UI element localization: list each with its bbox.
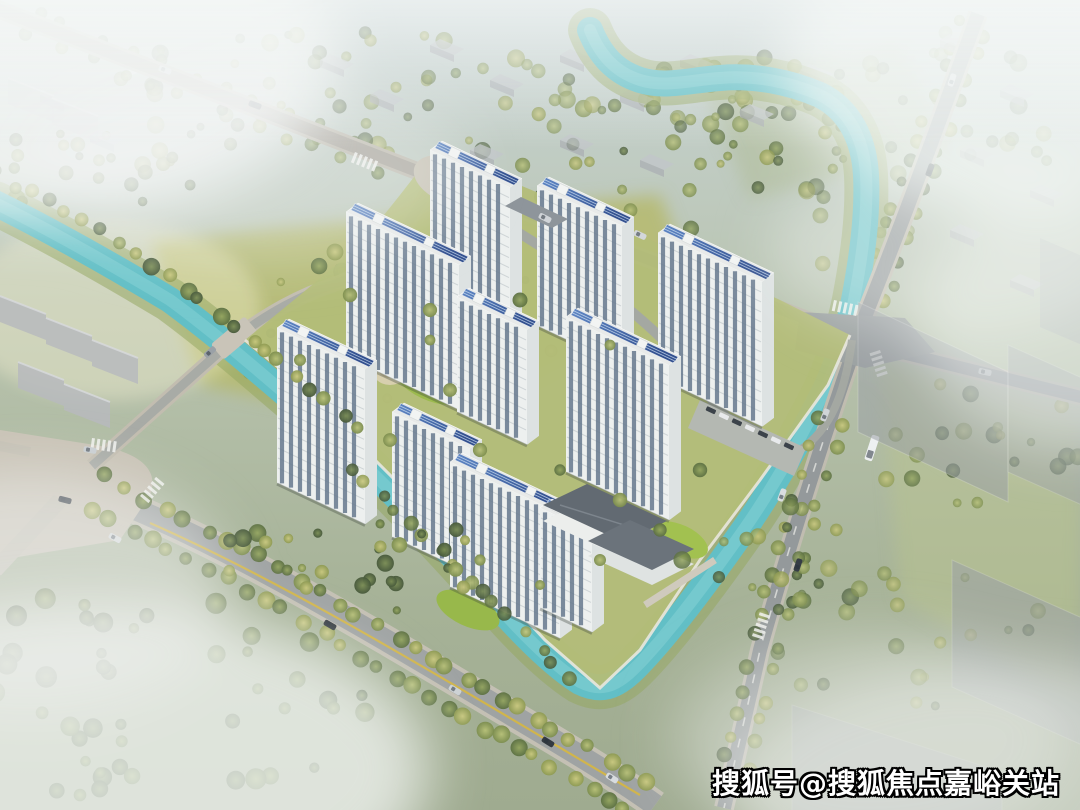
scene-svg	[0, 0, 1080, 810]
tree	[693, 463, 707, 477]
tree	[227, 320, 240, 333]
tower-side-facade	[365, 360, 377, 524]
tree	[404, 516, 419, 531]
tree	[617, 185, 627, 195]
tree	[618, 764, 635, 781]
tree	[294, 354, 306, 366]
tree	[820, 560, 837, 577]
tree	[351, 422, 363, 434]
tree	[792, 592, 807, 607]
tree	[477, 722, 494, 739]
tree	[435, 658, 452, 675]
tree	[423, 303, 437, 317]
tree	[379, 491, 390, 502]
tree	[386, 576, 397, 587]
tree	[782, 498, 799, 515]
tree	[284, 534, 294, 544]
tree	[313, 529, 322, 538]
tree	[814, 579, 824, 589]
tree	[569, 157, 582, 170]
watermark-text: 搜狐号@搜狐焦点嘉峪关站	[712, 762, 1060, 802]
tree	[594, 554, 606, 566]
tree	[584, 157, 595, 168]
tree	[277, 278, 285, 286]
tree	[773, 156, 783, 166]
tree	[474, 554, 485, 565]
tower-side-facade	[762, 273, 774, 427]
tree	[190, 292, 202, 304]
tree	[682, 183, 696, 197]
tree	[296, 615, 312, 631]
tree	[694, 158, 707, 171]
tree	[223, 534, 237, 548]
tree	[291, 370, 303, 382]
tree	[808, 500, 820, 512]
tree	[239, 584, 255, 600]
tree	[972, 497, 984, 509]
tower-side-facade	[527, 321, 539, 445]
tree	[163, 268, 177, 282]
tree	[343, 288, 357, 302]
tree	[752, 181, 765, 194]
aerial-rendering-canvas: 搜狐号@搜狐焦点嘉峪关站	[0, 0, 1080, 810]
tree	[143, 258, 161, 276]
tree	[282, 565, 293, 576]
tree	[544, 656, 557, 669]
tree	[474, 679, 490, 695]
tree	[890, 598, 905, 613]
tree	[371, 618, 384, 631]
tree	[541, 760, 557, 776]
tree	[877, 566, 891, 580]
tree	[542, 722, 558, 738]
tree	[808, 517, 821, 530]
tree	[803, 440, 815, 452]
tree	[493, 725, 511, 743]
tree	[374, 541, 386, 553]
tree	[298, 564, 306, 572]
tree	[828, 164, 838, 174]
tree	[757, 585, 771, 599]
tree	[520, 626, 531, 637]
tree	[370, 660, 383, 673]
tree	[637, 773, 655, 791]
tree	[561, 733, 575, 747]
tree	[333, 599, 347, 613]
tree	[838, 604, 855, 621]
tree	[497, 606, 511, 620]
tree	[300, 581, 314, 595]
tree	[377, 555, 394, 572]
tree	[443, 383, 457, 397]
tree	[835, 418, 850, 433]
car-windshield	[86, 447, 91, 452]
tower-side-facade	[669, 356, 681, 520]
tree	[259, 536, 272, 549]
tree	[485, 595, 498, 608]
tree	[403, 676, 421, 694]
tree	[535, 580, 545, 590]
tree	[356, 475, 369, 488]
tree	[759, 150, 775, 166]
tree	[302, 383, 317, 398]
tree	[740, 532, 754, 546]
tree	[315, 565, 329, 579]
tree	[383, 433, 397, 447]
tree	[568, 771, 583, 786]
tree	[904, 470, 920, 486]
tree	[425, 335, 436, 346]
tree	[878, 471, 894, 487]
tree	[953, 499, 962, 508]
tree	[311, 258, 327, 274]
tree	[473, 443, 487, 457]
tree	[448, 562, 463, 577]
tree	[513, 293, 528, 308]
northwest-exit-road	[0, 445, 30, 452]
tree	[771, 540, 786, 555]
tree	[821, 470, 832, 481]
tree	[449, 522, 464, 537]
tree	[554, 464, 565, 475]
tree	[417, 530, 426, 539]
tree	[510, 739, 527, 756]
tree	[454, 708, 471, 725]
tree	[748, 583, 756, 591]
tree	[719, 537, 728, 546]
tree	[851, 580, 868, 597]
tree	[605, 340, 616, 351]
tree	[130, 247, 142, 259]
tree	[354, 577, 371, 594]
tree	[673, 551, 691, 569]
tree	[460, 535, 470, 545]
tree	[613, 493, 627, 507]
tree	[393, 606, 401, 614]
tree	[269, 352, 283, 366]
tree	[773, 571, 789, 587]
tree	[346, 464, 359, 477]
tree	[717, 160, 725, 168]
tree	[581, 739, 594, 752]
tree	[257, 344, 271, 358]
tree	[421, 690, 437, 706]
tree	[339, 409, 353, 423]
tree	[345, 607, 361, 623]
tree	[515, 158, 530, 173]
tree	[509, 698, 526, 715]
tree	[773, 604, 784, 615]
tree	[830, 524, 843, 537]
tree	[830, 440, 845, 455]
tree	[539, 645, 550, 656]
tree	[653, 523, 666, 536]
tree	[525, 748, 537, 760]
tree	[272, 599, 287, 614]
tree	[723, 152, 732, 161]
tree	[437, 543, 451, 557]
tree	[713, 571, 725, 583]
tree	[393, 631, 410, 648]
tree	[314, 584, 327, 597]
tree	[797, 470, 807, 480]
tree	[334, 639, 346, 651]
tree	[392, 537, 408, 553]
tree	[409, 641, 422, 654]
tree	[782, 522, 792, 532]
tree	[587, 782, 603, 798]
tree	[213, 308, 231, 326]
tree	[376, 519, 385, 528]
tree	[387, 505, 398, 516]
tree	[601, 792, 618, 809]
top-haze-band	[0, 0, 1080, 150]
tree	[604, 753, 621, 770]
tree	[316, 391, 330, 405]
tree	[234, 529, 252, 547]
tree	[562, 671, 577, 686]
tree	[457, 581, 470, 594]
